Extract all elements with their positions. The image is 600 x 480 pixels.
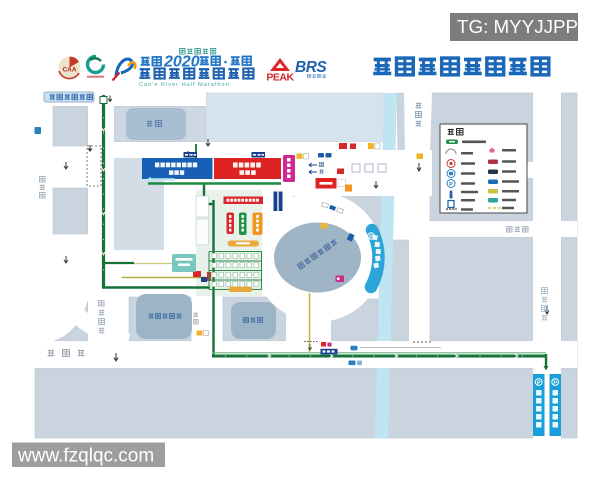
svg-text:PEAK: PEAK [266, 72, 294, 84]
svg-text:P: P [553, 381, 557, 387]
svg-text:P: P [537, 381, 541, 387]
svg-text:www.fzqlqc.com: www.fzqlqc.com [17, 446, 154, 467]
svg-text:Cao'e River Half Marathon: Cao'e River Half Marathon [139, 82, 230, 88]
svg-text:BRS: BRS [295, 59, 327, 76]
svg-text:CAA: CAA [62, 67, 76, 74]
svg-text:TG: MYYJJPP: TG: MYYJJPP [457, 16, 578, 37]
svg-text:P: P [449, 182, 453, 188]
